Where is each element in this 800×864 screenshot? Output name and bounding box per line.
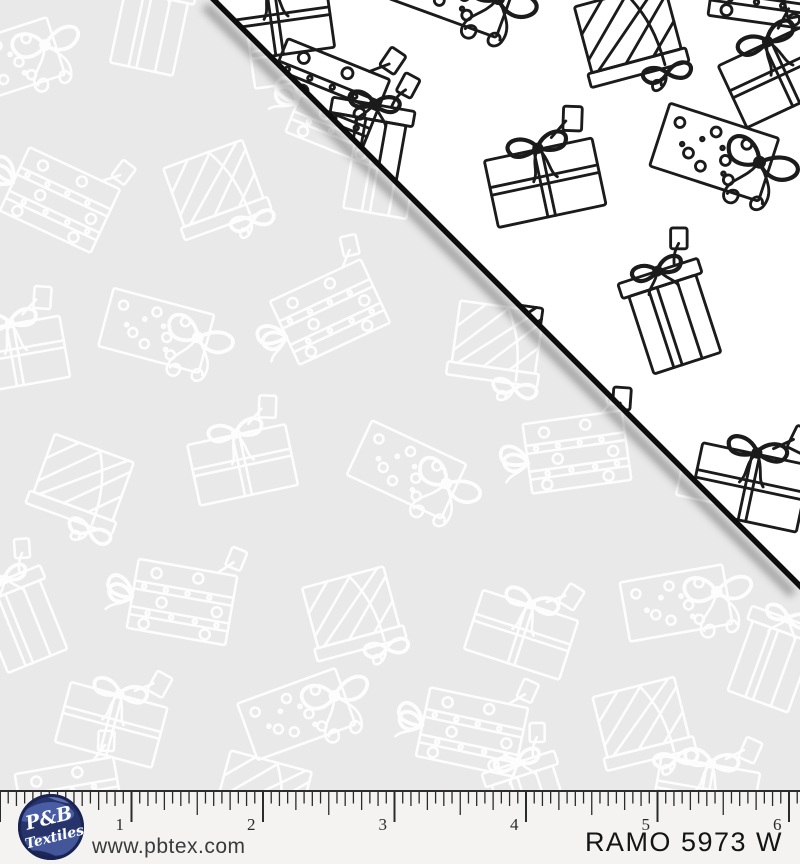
fabric-pattern-canvas bbox=[0, 0, 800, 790]
fabric-swatch-image: 123456 P&B Textiles www.pbtex.com RAMO 5… bbox=[0, 0, 800, 864]
ruler-number-1: 1 bbox=[116, 816, 125, 833]
footer-bar: 123456 P&B Textiles www.pbtex.com RAMO 5… bbox=[0, 790, 800, 864]
pb-textiles-logo: P&B Textiles bbox=[17, 793, 85, 861]
ruler-number-3: 3 bbox=[379, 816, 388, 833]
ruler-number-2: 2 bbox=[247, 816, 256, 833]
ruler-number-4: 4 bbox=[510, 816, 519, 833]
website-text: www.pbtex.com bbox=[92, 835, 246, 859]
product-code: RAMO 5973 W bbox=[585, 827, 783, 858]
